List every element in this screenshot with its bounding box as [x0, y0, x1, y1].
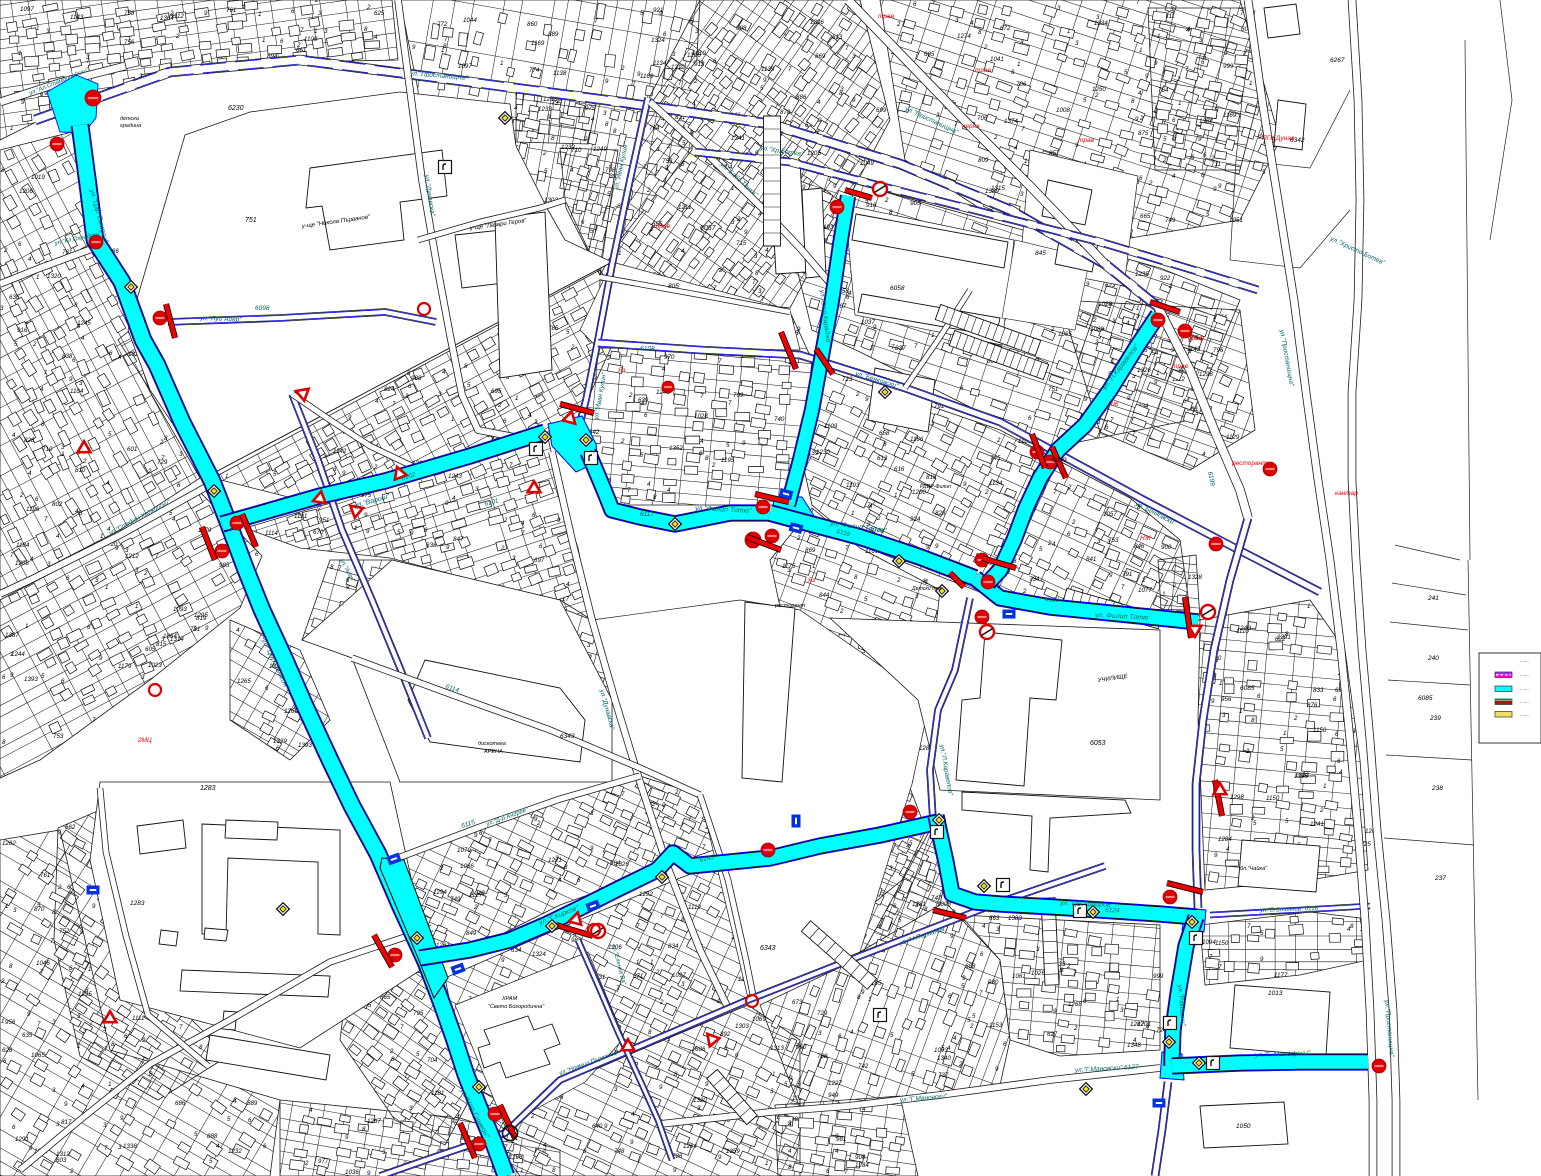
svg-text:9: 9: [835, 1133, 839, 1140]
svg-text:847: 847: [453, 536, 464, 543]
svg-text:3: 3: [333, 466, 337, 473]
svg-text:1196: 1196: [509, 1154, 523, 1161]
svg-text:640: 640: [592, 1123, 603, 1130]
svg-text:8: 8: [1173, 135, 1177, 142]
svg-text:1: 1: [193, 625, 196, 632]
svg-text:4: 4: [647, 481, 651, 488]
svg-text:5: 5: [1262, 169, 1266, 176]
svg-text:4: 4: [953, 1035, 957, 1042]
svg-text:1303: 1303: [735, 1023, 749, 1030]
svg-text:8: 8: [641, 400, 645, 407]
svg-text:1: 1: [650, 959, 653, 966]
svg-text:9: 9: [1214, 852, 1218, 859]
svg-text:888: 888: [207, 1133, 218, 1140]
svg-text:8: 8: [2, 739, 6, 746]
svg-text:4: 4: [40, 386, 44, 393]
svg-text:3: 3: [1020, 191, 1024, 198]
svg-text:729: 729: [817, 1010, 828, 1017]
svg-text:7: 7: [752, 279, 756, 286]
svg-text:9: 9: [1224, 50, 1228, 57]
svg-text:4: 4: [558, 877, 562, 884]
svg-text:3: 3: [405, 393, 409, 400]
svg-text:921: 921: [653, 7, 663, 14]
svg-text:8: 8: [705, 455, 709, 462]
svg-text:1348: 1348: [1127, 1042, 1141, 1049]
svg-text:6: 6: [69, 965, 73, 972]
svg-text:6: 6: [177, 482, 181, 489]
svg-text:4: 4: [835, 1148, 839, 1155]
svg-text:688: 688: [965, 963, 976, 970]
svg-text:802: 802: [52, 501, 63, 508]
svg-text:999: 999: [1223, 63, 1234, 70]
svg-text:1352: 1352: [669, 445, 683, 452]
svg-text:751: 751: [1048, 386, 1058, 393]
svg-text:чернв: чернв: [962, 123, 980, 130]
svg-text:1186: 1186: [910, 436, 924, 443]
svg-text:4: 4: [452, 495, 456, 502]
svg-text:1153: 1153: [989, 1022, 1003, 1029]
svg-text:9: 9: [534, 816, 538, 823]
svg-text:2: 2: [1139, 115, 1144, 122]
svg-text:6: 6: [1105, 424, 1109, 431]
svg-text:8: 8: [330, 564, 334, 571]
svg-text:7: 7: [118, 1099, 122, 1106]
svg-text:7: 7: [636, 923, 640, 930]
svg-text:749: 749: [1165, 217, 1176, 224]
svg-text:1112: 1112: [171, 13, 184, 20]
svg-text:3: 3: [787, 567, 791, 574]
svg-text:4: 4: [850, 1029, 854, 1036]
svg-text:2: 2: [983, 44, 988, 51]
svg-text:1340: 1340: [937, 1055, 951, 1062]
svg-text:1283: 1283: [200, 785, 216, 792]
svg-text:1013: 1013: [1268, 990, 1283, 997]
svg-text:1097: 1097: [672, 972, 686, 979]
svg-text:1012: 1012: [471, 890, 485, 897]
svg-text:5: 5: [37, 902, 41, 909]
svg-text:8: 8: [583, 1148, 587, 1155]
svg-text:6: 6: [67, 884, 71, 891]
svg-text:4: 4: [28, 470, 32, 477]
svg-text:3: 3: [95, 577, 99, 584]
svg-text:4: 4: [1187, 26, 1191, 33]
svg-text:3: 3: [103, 1122, 107, 1129]
svg-text:673: 673: [792, 999, 803, 1006]
svg-text:4: 4: [81, 335, 85, 342]
svg-text:841: 841: [1086, 556, 1096, 563]
svg-text:1324: 1324: [651, 37, 665, 44]
svg-text:4: 4: [947, 1045, 951, 1052]
svg-text:1023: 1023: [148, 662, 162, 669]
svg-text:ХРАМ: ХРАМ: [501, 996, 518, 1002]
svg-text:753: 753: [53, 733, 64, 740]
svg-text:7: 7: [1121, 584, 1125, 591]
svg-text:1143: 1143: [70, 14, 84, 21]
svg-text:1037: 1037: [861, 319, 875, 326]
svg-text:1: 1: [1067, 28, 1070, 35]
svg-text:1359: 1359: [726, 1148, 740, 1155]
svg-text:.......: .......: [1520, 699, 1529, 704]
svg-text:6: 6: [109, 350, 113, 357]
svg-text:1: 1: [36, 274, 39, 281]
svg-text:7: 7: [627, 487, 631, 494]
svg-text:6: 6: [1337, 758, 1341, 765]
svg-text:1: 1: [1239, 708, 1242, 715]
svg-text:1: 1: [1116, 996, 1119, 1003]
svg-text:9: 9: [364, 512, 368, 519]
svg-text:9: 9: [630, 1139, 634, 1146]
svg-text:1041: 1041: [990, 56, 1004, 63]
svg-text:7: 7: [845, 45, 849, 52]
svg-text:3: 3: [161, 636, 165, 643]
svg-text:1287: 1287: [1130, 1021, 1144, 1028]
svg-text:1193: 1193: [846, 482, 860, 489]
svg-text:2: 2: [1148, 180, 1153, 187]
svg-text:1160: 1160: [640, 73, 654, 80]
svg-text:1341: 1341: [731, 135, 745, 142]
svg-text:7: 7: [50, 938, 54, 945]
svg-text:3: 3: [323, 453, 327, 460]
svg-text:6098: 6098: [255, 305, 270, 312]
svg-text:5: 5: [194, 1131, 198, 1138]
svg-text:6: 6: [79, 510, 83, 517]
svg-text:4: 4: [1052, 541, 1056, 548]
svg-text:924: 924: [910, 516, 921, 523]
svg-text:1: 1: [44, 369, 47, 376]
svg-text:3: 3: [758, 288, 762, 295]
svg-text:1: 1: [108, 1081, 111, 1088]
svg-text:6: 6: [291, 8, 295, 15]
svg-text:1169: 1169: [531, 40, 545, 47]
svg-text:1150: 1150: [1313, 727, 1327, 734]
svg-text:2: 2: [373, 464, 378, 471]
svg-text:2: 2: [1172, 582, 1177, 589]
svg-text:9: 9: [935, 543, 939, 550]
svg-text:740: 740: [774, 416, 785, 423]
svg-text:1093: 1093: [173, 606, 187, 613]
svg-text:9: 9: [1145, 73, 1149, 80]
svg-text:2: 2: [1168, 283, 1173, 290]
svg-text:7: 7: [521, 530, 525, 537]
svg-text:922: 922: [1160, 275, 1171, 282]
svg-text:1097: 1097: [458, 63, 472, 70]
svg-text:8: 8: [857, 994, 861, 1001]
svg-text:8: 8: [613, 128, 617, 135]
svg-text:9: 9: [718, 1154, 722, 1161]
svg-text:6: 6: [35, 496, 39, 503]
svg-text:2: 2: [473, 904, 478, 911]
svg-text:ПГК Дунав: ПГК Дунав: [1262, 135, 1295, 142]
svg-text:6: 6: [1333, 696, 1337, 703]
svg-text:8: 8: [648, 1029, 652, 1036]
svg-text:5: 5: [1039, 546, 1043, 553]
svg-text:6: 6: [18, 241, 22, 248]
svg-text:635: 635: [22, 1032, 33, 1039]
svg-text:6: 6: [87, 624, 91, 631]
svg-text:9: 9: [204, 10, 208, 17]
svg-text:8: 8: [9, 963, 13, 970]
svg-text:8: 8: [924, 906, 928, 913]
svg-text:9: 9: [665, 165, 669, 172]
svg-text:798: 798: [605, 167, 616, 174]
svg-text:1050: 1050: [1236, 1123, 1251, 1130]
svg-text:8: 8: [199, 1044, 203, 1051]
svg-text:662: 662: [65, 824, 76, 831]
svg-text:970: 970: [664, 354, 675, 361]
svg-text:1243: 1243: [448, 473, 462, 480]
svg-text:1019: 1019: [31, 174, 45, 181]
svg-text:7: 7: [660, 913, 664, 920]
svg-text:6: 6: [1172, 117, 1176, 124]
svg-text:1: 1: [636, 959, 639, 966]
svg-text:748: 748: [614, 1148, 625, 1155]
svg-text:1195: 1195: [721, 457, 735, 464]
svg-text:870: 870: [780, 109, 791, 116]
svg-text:751: 751: [245, 217, 257, 224]
svg-text:градина: градина: [120, 123, 141, 129]
svg-text:1: 1: [731, 185, 734, 192]
svg-text:1262: 1262: [2, 840, 16, 847]
svg-text:4: 4: [667, 487, 671, 494]
svg-text:805: 805: [668, 283, 679, 290]
svg-text:1291: 1291: [15, 1136, 29, 1143]
svg-text:1: 1: [77, 1043, 80, 1050]
svg-text:ул."Луи Айер": ул."Луи Айер": [199, 314, 243, 324]
svg-text:1221: 1221: [548, 857, 562, 864]
svg-text:3: 3: [409, 1105, 413, 1112]
svg-text:3: 3: [318, 10, 322, 17]
svg-text:3: 3: [56, 1121, 60, 1128]
svg-text:5: 5: [681, 161, 685, 168]
svg-text:.......: .......: [1520, 672, 1529, 677]
svg-text:3: 3: [590, 810, 594, 817]
svg-text:810: 810: [75, 467, 86, 474]
svg-text:8: 8: [755, 270, 759, 277]
svg-text:756: 756: [124, 39, 135, 46]
svg-text:9: 9: [662, 802, 666, 809]
svg-text:658: 658: [879, 430, 890, 437]
svg-text:869: 869: [815, 53, 826, 60]
svg-text:6: 6: [408, 383, 412, 390]
svg-text:5: 5: [726, 442, 730, 449]
svg-text:8: 8: [1251, 717, 1255, 724]
svg-text:8: 8: [164, 435, 168, 442]
svg-text:2: 2: [1293, 715, 1298, 722]
svg-text:детска: детска: [120, 116, 139, 122]
svg-text:1134: 1134: [653, 60, 667, 67]
svg-text:5: 5: [41, 673, 45, 680]
svg-text:8: 8: [854, 574, 858, 581]
svg-text:4: 4: [982, 923, 986, 930]
svg-text:5: 5: [1260, 930, 1264, 937]
svg-text:6: 6: [699, 450, 703, 457]
svg-text:916: 916: [866, 202, 877, 209]
svg-text:8: 8: [74, 302, 78, 309]
svg-text:1320: 1320: [693, 1097, 707, 1104]
svg-text:7: 7: [678, 80, 682, 87]
svg-text:8: 8: [674, 1071, 678, 1078]
svg-text:6: 6: [644, 412, 648, 419]
svg-text:3: 3: [1057, 5, 1061, 12]
svg-text:1324: 1324: [532, 951, 546, 958]
svg-text:6: 6: [913, 1, 917, 8]
svg-text:ресторант: ресторант: [774, 603, 806, 609]
svg-text:1326: 1326: [615, 861, 629, 868]
svg-text:240: 240: [1239, 625, 1251, 632]
svg-text:9: 9: [474, 832, 478, 839]
svg-text:706: 706: [977, 115, 988, 122]
svg-text:8: 8: [923, 578, 927, 585]
svg-text:2: 2: [389, 1048, 394, 1055]
svg-text:745: 745: [990, 455, 1001, 462]
svg-text:2: 2: [1066, 963, 1071, 970]
svg-text:2: 2: [796, 535, 801, 542]
svg-text:2: 2: [143, 570, 148, 577]
svg-text:837: 837: [895, 345, 906, 352]
svg-text:3: 3: [1075, 40, 1079, 47]
svg-text:6: 6: [1011, 69, 1015, 76]
svg-text:6: 6: [948, 993, 952, 1000]
svg-text:7: 7: [1209, 954, 1213, 961]
svg-text:5: 5: [682, 140, 686, 147]
svg-text:7: 7: [1218, 964, 1222, 971]
svg-text:3: 3: [1195, 410, 1199, 417]
svg-text:3: 3: [135, 567, 139, 574]
svg-text:240: 240: [1427, 655, 1439, 662]
svg-text:1205: 1205: [807, 150, 821, 157]
svg-text:663: 663: [989, 915, 1000, 922]
svg-text:4: 4: [81, 1083, 85, 1090]
svg-text:6: 6: [1201, 172, 1205, 179]
svg-text:1393: 1393: [298, 742, 312, 749]
svg-text:8: 8: [605, 121, 609, 128]
svg-text:7: 7: [300, 27, 304, 34]
svg-text:6085: 6085: [1418, 695, 1433, 702]
svg-text:2: 2: [583, 136, 588, 143]
svg-text:2: 2: [628, 392, 633, 399]
svg-text:7: 7: [1021, 126, 1025, 133]
svg-text:2: 2: [1319, 807, 1324, 814]
svg-text:6: 6: [1139, 175, 1143, 182]
svg-text:5: 5: [504, 892, 508, 899]
svg-text:1109: 1109: [824, 423, 838, 430]
svg-text:6: 6: [1083, 998, 1087, 1005]
svg-text:2МЦ: 2МЦ: [137, 737, 152, 744]
svg-text:7: 7: [444, 36, 448, 43]
svg-text:886: 886: [796, 94, 807, 101]
svg-text:7: 7: [1136, 0, 1140, 6]
svg-text:1391: 1391: [1277, 634, 1291, 641]
svg-text:3: 3: [936, 112, 940, 119]
svg-text:1: 1: [1283, 730, 1286, 737]
svg-text:2: 2: [439, 865, 444, 872]
svg-text:1: 1: [1249, 80, 1252, 87]
svg-text:4: 4: [374, 34, 378, 41]
svg-text:6: 6: [1003, 1041, 1007, 1048]
svg-text:6: 6: [265, 685, 269, 692]
svg-text:2: 2: [159, 439, 164, 446]
svg-text:4: 4: [1172, 173, 1176, 180]
svg-text:988: 988: [411, 375, 422, 382]
svg-text:613: 613: [832, 34, 843, 41]
svg-text:819: 819: [196, 615, 207, 622]
svg-text:4: 4: [442, 369, 446, 376]
svg-text:2: 2: [1094, 92, 1099, 99]
svg-text:905: 905: [910, 200, 921, 207]
svg-text:1374: 1374: [1004, 118, 1018, 125]
svg-text:9: 9: [10, 672, 14, 679]
svg-text:2: 2: [570, 344, 575, 351]
svg-text:1: 1: [258, 11, 261, 18]
svg-text:7: 7: [400, 1024, 404, 1031]
svg-text:1326: 1326: [1137, 367, 1151, 374]
svg-text:6: 6: [532, 512, 536, 519]
svg-text:2: 2: [500, 545, 505, 552]
svg-text:9: 9: [1260, 956, 1264, 963]
svg-text:1294: 1294: [433, 889, 447, 896]
svg-text:1: 1: [1210, 352, 1213, 359]
svg-text:1049: 1049: [860, 160, 874, 167]
svg-text:6: 6: [539, 543, 543, 550]
svg-text:1044: 1044: [463, 17, 477, 24]
svg-text:2: 2: [141, 1037, 146, 1044]
svg-text:605: 605: [145, 646, 156, 653]
svg-text:2: 2: [958, 1061, 963, 1068]
svg-text:4: 4: [869, 503, 873, 510]
svg-text:9: 9: [673, 1167, 677, 1174]
svg-text:7: 7: [40, 969, 44, 976]
svg-text:889: 889: [548, 31, 559, 38]
svg-text:2: 2: [1245, 748, 1250, 755]
svg-text:980: 980: [988, 979, 999, 986]
svg-text:6: 6: [3, 1058, 7, 1065]
svg-text:6: 6: [1183, 398, 1187, 405]
svg-text:672: 672: [1000, 25, 1011, 32]
svg-text:1: 1: [1323, 783, 1326, 790]
svg-text:9: 9: [366, 528, 370, 535]
svg-text:1206: 1206: [687, 52, 701, 59]
svg-text:9: 9: [412, 44, 416, 51]
svg-text:1: 1: [314, 28, 317, 35]
svg-text:дискотека: дискотека: [478, 741, 506, 747]
svg-text:695: 695: [491, 388, 502, 395]
svg-text:1: 1: [851, 510, 854, 517]
svg-text:9: 9: [590, 845, 594, 852]
svg-text:1312: 1312: [671, 64, 685, 71]
svg-text:1: 1: [5, 903, 8, 910]
svg-text:1211: 1211: [678, 204, 691, 211]
svg-text:1267: 1267: [367, 1118, 381, 1125]
svg-text:1: 1: [25, 623, 28, 630]
svg-text:кантар: кантар: [1335, 490, 1358, 497]
svg-text:7: 7: [37, 1021, 41, 1028]
svg-text:2: 2: [1067, 484, 1072, 491]
svg-text:616: 616: [894, 466, 905, 473]
svg-text:3: 3: [1097, 538, 1101, 545]
svg-text:7: 7: [10, 552, 14, 559]
svg-text:5: 5: [227, 1116, 231, 1123]
svg-text:711: 711: [1211, 161, 1221, 168]
svg-text:1177: 1177: [1274, 972, 1288, 979]
svg-text:АРЕНА: АРЕНА: [483, 749, 503, 755]
svg-text:4: 4: [56, 533, 60, 540]
svg-text:3: 3: [46, 28, 50, 35]
svg-text:860: 860: [527, 21, 538, 28]
svg-text:3: 3: [1120, 1007, 1124, 1014]
svg-text:6: 6: [503, 418, 507, 425]
svg-text:7: 7: [161, 455, 165, 462]
svg-text:1036: 1036: [345, 1169, 359, 1176]
